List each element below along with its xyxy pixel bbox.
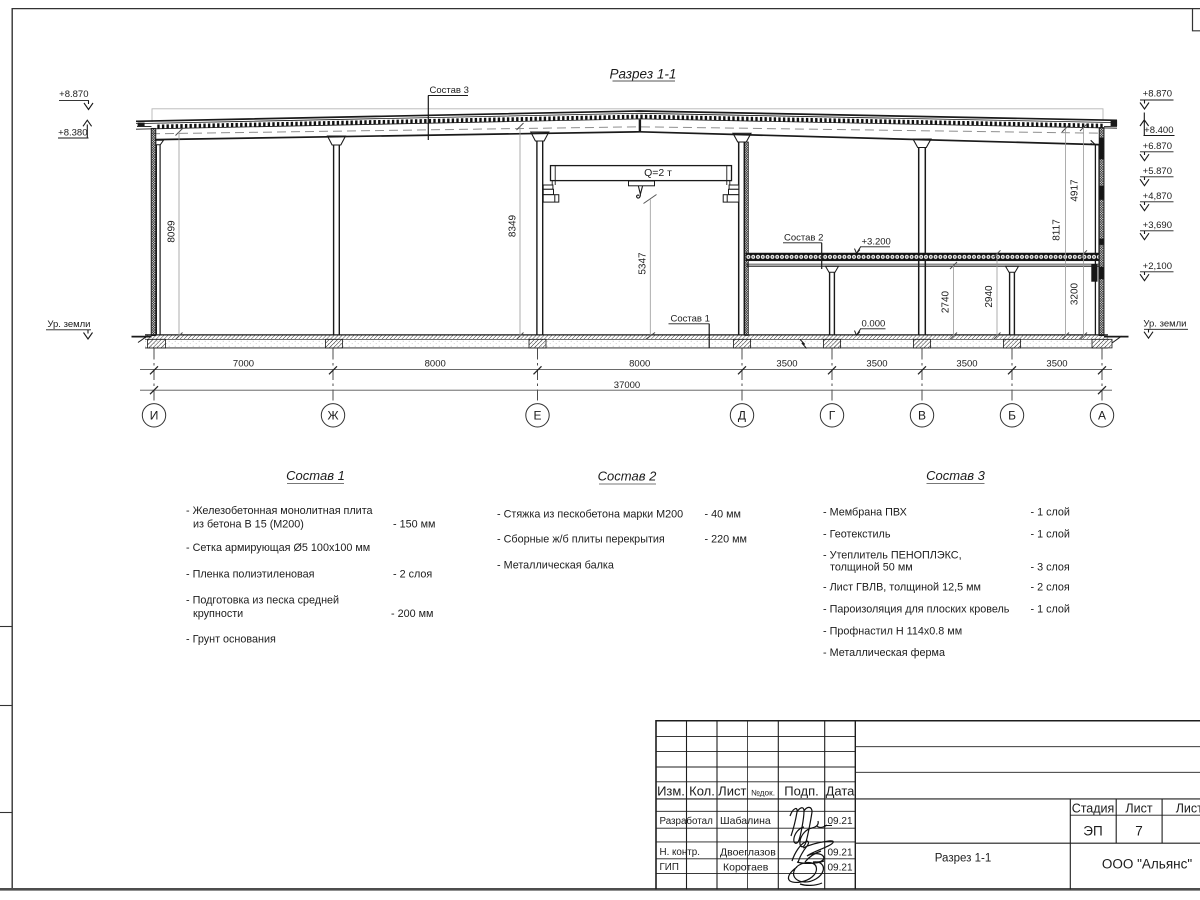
svg-text:- Подготовка из песка средней: - Подготовка из песка средней [186, 595, 339, 607]
svg-text:Состав 3: Состав 3 [430, 85, 469, 96]
svg-text:- 2 слоя: - 2 слоя [1031, 582, 1070, 594]
svg-text:5347: 5347 [638, 252, 649, 275]
svg-text:А: А [1098, 408, 1106, 422]
svg-text:Состав 2: Состав 2 [598, 469, 657, 484]
svg-text:Состав 3: Состав 3 [926, 468, 985, 483]
svg-text:Шабалина: Шабалина [720, 815, 771, 827]
svg-text:- Сборные ж/б плиты перекрытия: - Сборные ж/б плиты перекрытия [497, 534, 665, 546]
svg-text:Листов: Листов [1176, 801, 1200, 815]
svg-text:- Утеплитель ПЕНОПЛЭКС,: - Утеплитель ПЕНОПЛЭКС, [823, 550, 962, 562]
svg-text:из бетона В 15 (М200): из бетона В 15 (М200) [193, 519, 304, 531]
svg-text:- Сетка армирующая Ø5 100х100: - Сетка армирующая Ø5 100х100 мм [186, 542, 370, 554]
svg-text:+3.200: +3.200 [862, 237, 891, 248]
svg-text:Г: Г [829, 408, 836, 422]
svg-text:Стадия: Стадия [1072, 801, 1115, 815]
svg-text:- 2 слоя: - 2 слоя [393, 569, 432, 581]
svg-text:И: И [150, 409, 159, 423]
svg-text:Б: Б [1008, 408, 1016, 422]
svg-text:Кол.: Кол. [689, 784, 715, 799]
svg-text:Лист: Лист [1125, 801, 1152, 815]
svg-text:+2,100: +2,100 [1143, 261, 1172, 272]
svg-text:ООО "Альянс": ООО "Альянс" [1102, 857, 1192, 872]
svg-text:Д: Д [738, 408, 746, 422]
svg-text:Е: Е [533, 408, 541, 422]
svg-text:+4,870: +4,870 [1143, 191, 1172, 202]
svg-text:Разработал: Разработал [660, 816, 714, 827]
svg-text:- Профнастил Н 114х0.8 мм: - Профнастил Н 114х0.8 мм [823, 626, 962, 638]
svg-text:4917: 4917 [1070, 179, 1081, 202]
svg-text:09.21: 09.21 [828, 862, 853, 873]
svg-text:толщиной 50 мм: толщиной 50 мм [830, 562, 913, 574]
svg-text:3500: 3500 [956, 359, 977, 370]
svg-text:Изм.: Изм. [657, 784, 685, 799]
svg-text:Н. контр.: Н. контр. [660, 847, 700, 858]
svg-text:Двоеглазов: Двоеглазов [720, 846, 776, 858]
svg-text:8349: 8349 [508, 214, 519, 237]
svg-text:Дата: Дата [826, 784, 856, 799]
svg-text:7000: 7000 [233, 359, 254, 370]
svg-text:3500: 3500 [1046, 359, 1067, 370]
svg-text:8099: 8099 [167, 220, 178, 243]
svg-text:Q=2 т: Q=2 т [644, 167, 672, 179]
svg-text:- 150 мм: - 150 мм [393, 519, 435, 531]
svg-text:ГИП: ГИП [660, 862, 679, 873]
svg-text:Ур. земли: Ур. земли [47, 319, 90, 330]
svg-text:№док.: №док. [751, 789, 775, 798]
svg-text:Состав 2: Состав 2 [784, 233, 823, 244]
svg-text:Подп.: Подп. [784, 784, 819, 799]
svg-text:8000: 8000 [629, 359, 650, 370]
svg-text:Коротаев: Коротаев [723, 861, 769, 873]
svg-text:- Пленка полиэтиленовая: - Пленка полиэтиленовая [186, 569, 315, 581]
svg-text:- 40 мм: - 40 мм [705, 509, 741, 521]
svg-text:Ж: Ж [327, 408, 338, 422]
svg-text:ЭП: ЭП [1083, 824, 1102, 839]
svg-text:7: 7 [1135, 824, 1143, 839]
svg-text:- Лист ГВЛВ, толщиной 12,5 мм: - Лист ГВЛВ, толщиной 12,5 мм [823, 582, 981, 594]
svg-text:+3,690: +3,690 [1143, 220, 1172, 231]
svg-text:- Пароизоляция для плоских кро: - Пароизоляция для плоских кровель [823, 604, 1010, 616]
svg-text:В: В [918, 408, 926, 422]
svg-text:- Металлическая балка: - Металлическая балка [497, 560, 614, 572]
svg-text:- 200 мм: - 200 мм [391, 608, 433, 620]
svg-text:3200: 3200 [1070, 282, 1081, 305]
svg-text:Лист: Лист [718, 784, 746, 799]
svg-text:- Геотекстиль: - Геотекстиль [823, 529, 891, 541]
svg-text:- Металлическая ферма: - Металлическая ферма [823, 647, 945, 659]
svg-text:+6.870: +6.870 [1143, 141, 1172, 152]
svg-text:- Стяжка из пескобетона марки: - Стяжка из пескобетона марки М200 [497, 509, 683, 521]
svg-text:- 1 слой: - 1 слой [1031, 604, 1070, 616]
svg-text:+5.870: +5.870 [1143, 166, 1172, 177]
svg-text:Разрез 1-1: Разрез 1-1 [935, 853, 991, 865]
svg-text:- 1 слой: - 1 слой [1031, 507, 1070, 519]
svg-text:Состав 1: Состав 1 [671, 314, 710, 325]
svg-text:0.000: 0.000 [862, 319, 886, 330]
svg-text:- 220 мм: - 220 мм [705, 534, 747, 546]
svg-text:- Грунт основания: - Грунт основания [186, 634, 276, 646]
svg-text:37000: 37000 [614, 380, 640, 391]
svg-text:+8.870: +8.870 [59, 89, 88, 100]
svg-text:3500: 3500 [776, 359, 797, 370]
svg-text:- 1 слой: - 1 слой [1031, 529, 1070, 541]
svg-text:Разрез 1-1: Разрез 1-1 [610, 67, 677, 82]
svg-text:+8.400: +8.400 [1144, 125, 1173, 136]
svg-text:3500: 3500 [866, 359, 887, 370]
svg-text:09.21: 09.21 [828, 847, 853, 858]
svg-text:- 3 слоя: - 3 слоя [1031, 562, 1070, 574]
svg-text:- Мембрана ПВХ: - Мембрана ПВХ [823, 507, 907, 519]
svg-text:+8.870: +8.870 [1143, 89, 1172, 100]
svg-text:2740: 2740 [941, 290, 952, 313]
svg-text:Ур. земли: Ур. земли [1143, 319, 1186, 330]
svg-text:крупности: крупности [193, 608, 243, 620]
svg-text:8000: 8000 [425, 359, 446, 370]
svg-text:- Железобетонная монолитная п: - Железобетонная монолитная плита [186, 505, 373, 517]
svg-text:Состав 1: Состав 1 [286, 468, 345, 483]
svg-text:+8.380: +8.380 [58, 128, 87, 139]
svg-text:2940: 2940 [984, 285, 995, 308]
svg-text:8117: 8117 [1052, 219, 1063, 241]
